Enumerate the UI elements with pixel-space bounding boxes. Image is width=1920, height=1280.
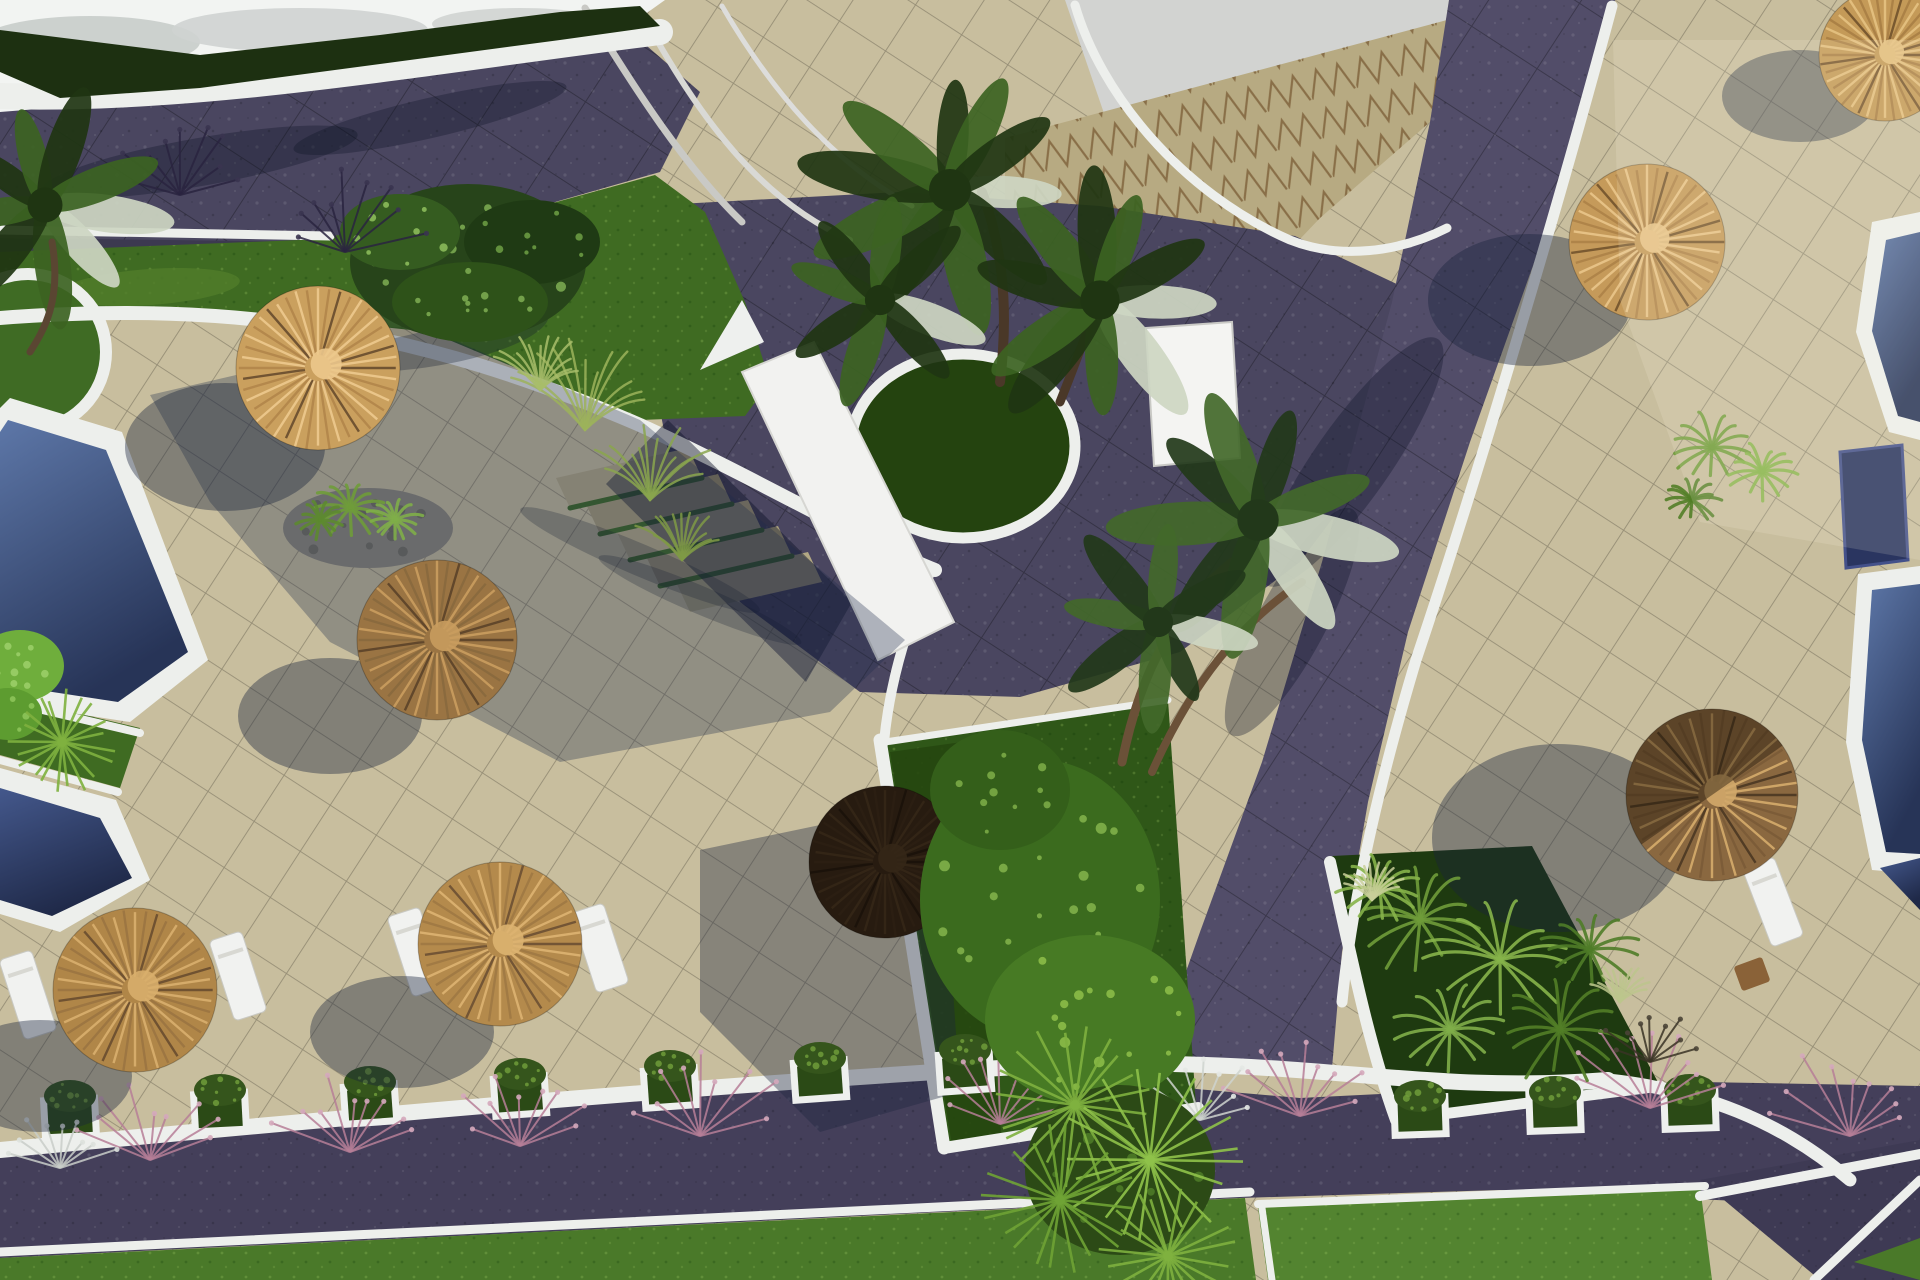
tree-canopy bbox=[340, 194, 460, 270]
planter-bush bbox=[1529, 1076, 1581, 1108]
garden-bushes bbox=[930, 730, 1070, 850]
planter-bush bbox=[1394, 1080, 1446, 1112]
thatch-umbrella bbox=[357, 560, 517, 720]
tree-canopy bbox=[392, 262, 548, 342]
aerial-resort-render bbox=[0, 0, 1920, 1280]
thatch-umbrella bbox=[53, 908, 217, 1072]
planter-bush bbox=[194, 1074, 246, 1106]
thatch-umbrella bbox=[418, 862, 582, 1026]
planter-bush bbox=[644, 1050, 696, 1082]
scene-canvas bbox=[0, 0, 1920, 1280]
planter-bush bbox=[794, 1042, 846, 1074]
planter-bush bbox=[494, 1058, 546, 1090]
thatch-umbrella bbox=[236, 286, 400, 450]
scene-root bbox=[0, 0, 1920, 1280]
